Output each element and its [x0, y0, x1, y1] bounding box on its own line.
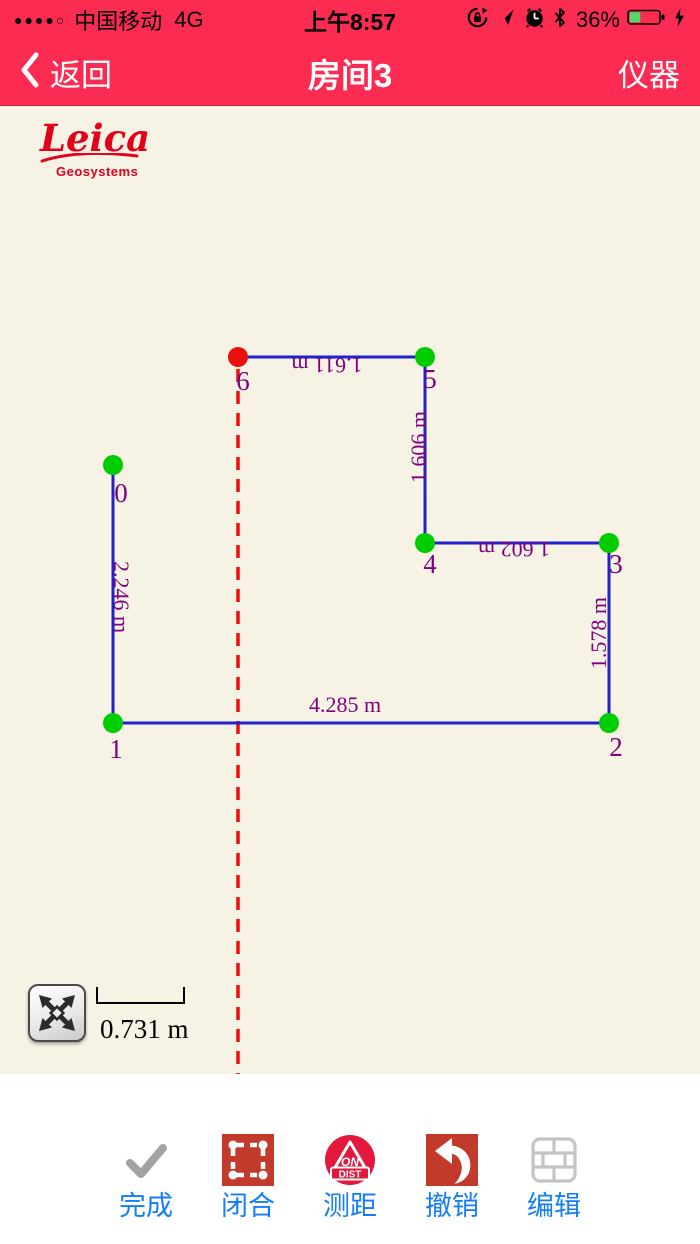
measurement-canvas[interactable]: 2.246 m4.285 m1.578 m1.602 m1.606 m1.611… — [0, 106, 700, 1074]
vertex-number-label: 2 — [609, 732, 623, 762]
alarm-clock-icon — [523, 6, 546, 35]
leica-logo-subtitle: Geosystems — [56, 164, 150, 179]
edge-length-label: 1.602 m — [478, 537, 550, 562]
done-button[interactable]: 完成 — [95, 1134, 197, 1222]
bluetooth-icon — [553, 7, 567, 34]
bottom-toolbar: 完成 闭合 — [0, 1074, 700, 1244]
scale-value-label: 0.731 m — [100, 1014, 189, 1045]
leica-logo-wordmark: Leica — [40, 120, 150, 157]
orientation-lock-icon — [466, 6, 489, 35]
move-arrows-icon — [35, 991, 79, 1035]
undo-icon — [426, 1134, 478, 1186]
instrument-button[interactable]: 仪器 — [618, 50, 680, 95]
measure-distance-icon: ON DIST — [324, 1134, 376, 1186]
active-vertex-point[interactable] — [228, 347, 248, 367]
done-button-label: 完成 — [119, 1192, 173, 1222]
close-polygon-button[interactable]: 闭合 — [197, 1134, 299, 1222]
nav-bar: 返回 房间3 仪器 — [0, 40, 700, 106]
pan-move-button[interactable] — [28, 984, 86, 1042]
vertex-number-label: 1 — [109, 734, 123, 764]
measure-distance-button-label: 测距 — [323, 1192, 377, 1222]
charging-bolt-icon — [673, 7, 686, 34]
back-button-label: 返回 — [50, 50, 112, 95]
svg-text:DIST: DIST — [339, 1170, 362, 1181]
back-button[interactable]: 返回 — [20, 50, 112, 95]
vertex-number-label: 4 — [423, 549, 437, 579]
edge-length-label: 4.285 m — [309, 692, 381, 717]
scale-bar — [96, 986, 188, 1006]
vertex-number-label: 0 — [114, 478, 128, 508]
location-arrow-icon — [496, 7, 516, 33]
close-polygon-icon — [222, 1134, 274, 1186]
status-bar: ●●●●○ 中国移动 4G 上午8:57 — [0, 0, 700, 40]
battery-icon — [627, 7, 666, 33]
floor-plan-svg[interactable]: 2.246 m4.285 m1.578 m1.602 m1.606 m1.611… — [0, 106, 700, 1074]
vertex-point[interactable] — [103, 713, 123, 733]
edge-length-label: 1.606 m — [406, 411, 431, 483]
battery-percent-label: 36% — [576, 7, 620, 33]
edge-length-label: 1.611 m — [291, 353, 362, 378]
vertex-point[interactable] — [103, 455, 123, 475]
edge-length-label: 1.578 m — [586, 597, 611, 669]
edit-wall-icon — [528, 1134, 580, 1186]
vertex-number-label: 3 — [609, 549, 623, 579]
edit-wall-button-label: 编辑 — [527, 1192, 581, 1222]
undo-button-label: 撤销 — [425, 1192, 479, 1222]
edit-wall-button[interactable]: 编辑 — [503, 1134, 605, 1222]
close-polygon-button-label: 闭合 — [221, 1192, 275, 1222]
vertex-number-label: 6 — [236, 366, 250, 396]
chevron-left-icon — [20, 52, 40, 93]
measure-distance-button[interactable]: ON DIST 测距 — [299, 1134, 401, 1222]
vertex-number-label: 5 — [423, 364, 437, 394]
undo-button[interactable]: 撤销 — [401, 1134, 503, 1222]
edge-length-label: 2.246 m — [109, 561, 134, 633]
vertex-point[interactable] — [599, 713, 619, 733]
leica-logo: Leica Geosystems — [40, 120, 150, 179]
check-icon — [120, 1134, 172, 1186]
